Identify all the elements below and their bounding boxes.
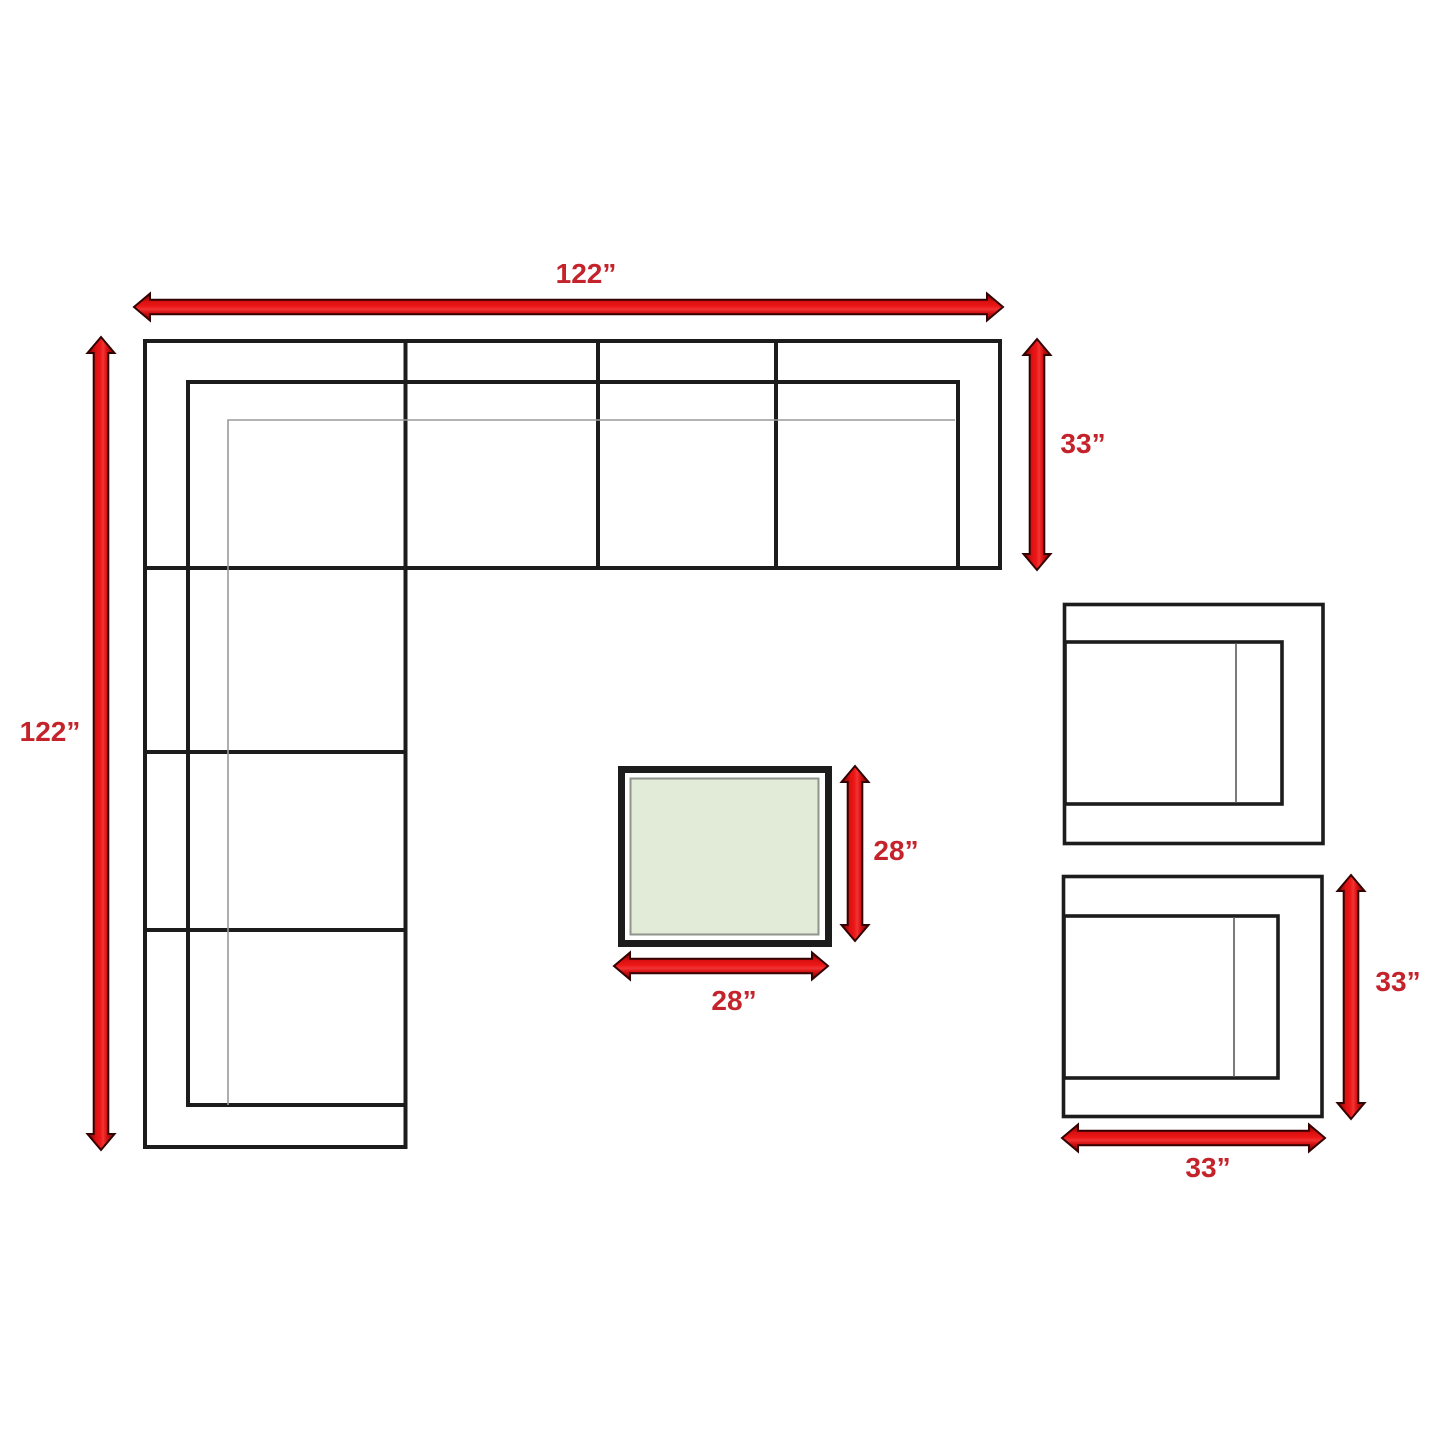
svg-text:122”: 122”	[556, 258, 617, 289]
svg-text:33”: 33”	[1060, 428, 1105, 459]
svg-text:122”: 122”	[20, 716, 81, 747]
svg-text:28”: 28”	[873, 835, 918, 866]
svg-text:33”: 33”	[1185, 1152, 1230, 1183]
svg-text:33”: 33”	[1375, 966, 1420, 997]
svg-text:28”: 28”	[711, 985, 756, 1016]
